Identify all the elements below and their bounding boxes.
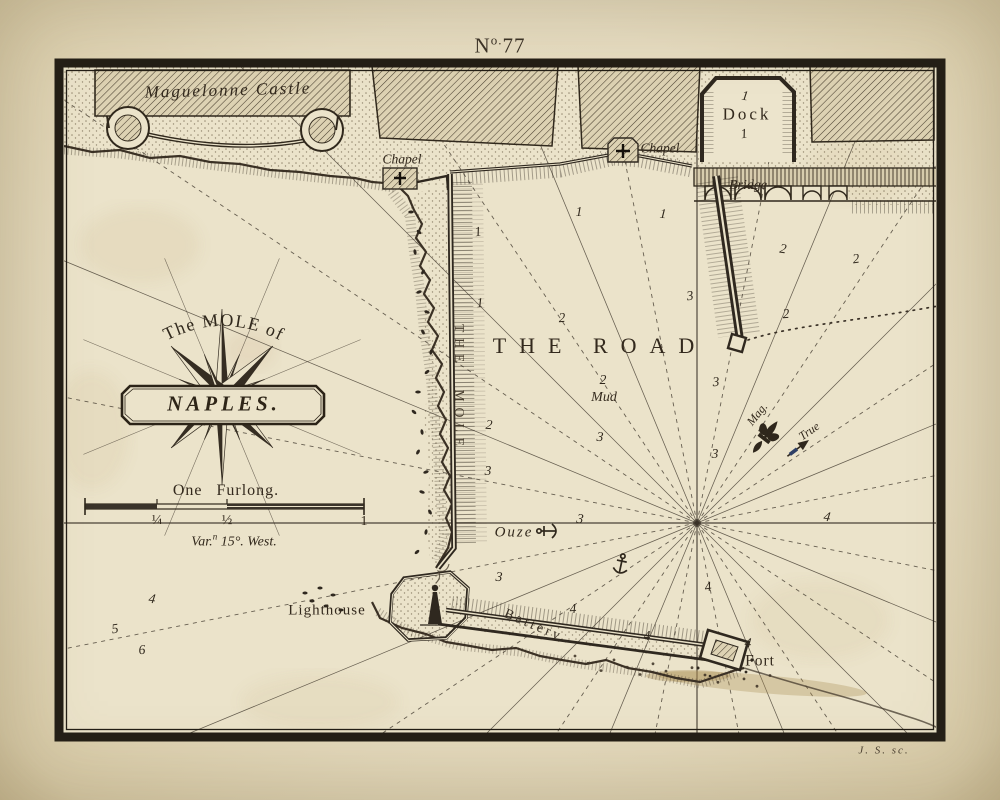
sounding-depth: 1 [476, 295, 484, 311]
scale-tick-one: 1 [361, 515, 368, 529]
sounding-depth: 3 [485, 463, 492, 479]
label-chapel-west: Chapel [383, 152, 422, 166]
sounding-depth: 1 [659, 206, 667, 222]
sounding-depth: 1 [576, 204, 583, 220]
engraver-signature: J. S. sc. [858, 746, 909, 757]
sounding-depth: 2 [782, 306, 790, 322]
sounding-depth: 6 [138, 642, 146, 658]
scale-tick-quarter: ¼ [152, 514, 163, 528]
chapel-east-building [608, 138, 638, 162]
label-ouze: Ouze [495, 526, 534, 541]
sounding-depth: 3 [712, 374, 720, 390]
scale-label: One Furlong. [173, 483, 279, 499]
magnetic-variation-note: Var.n 15°. West. [191, 533, 276, 550]
antique-chart-page: The MOLE of No.77 Maguelonne Castle Chap… [0, 0, 1000, 800]
sounding-depth: 2 [600, 372, 607, 388]
sounding-depth: 2 [485, 417, 493, 433]
sounding-depth: 4 [644, 628, 651, 644]
map-art: The MOLE of [0, 0, 1000, 800]
cartouche-title: NAPLES. [167, 394, 281, 415]
sounding-depth: 4 [569, 601, 577, 617]
sounding-depth: 3 [712, 446, 719, 462]
label-the-road: THE ROAD [493, 335, 708, 357]
scale-tick-half: ½ [222, 514, 233, 528]
sounding-depth: 2 [558, 310, 566, 326]
sounding-depth: 3 [596, 429, 604, 445]
town-blocks [372, 66, 934, 152]
label-lighthouse: Lighthouse [288, 604, 366, 619]
label-fort: Fort [745, 653, 775, 669]
label-chapel-east: Chapel [641, 141, 680, 155]
sounding-depth: 3 [495, 569, 503, 585]
label-the-mole: THE MOLE [452, 324, 466, 452]
sounding-depth: 4 [744, 635, 752, 651]
label-dock: Dock [723, 106, 772, 123]
plate-number: No.77 [475, 34, 526, 57]
chapel-west-building [383, 168, 417, 189]
label-bridge: Bridge [729, 179, 767, 193]
label-mud: Mud [591, 391, 617, 405]
label-castle: Maguelonne Castle [144, 79, 311, 100]
